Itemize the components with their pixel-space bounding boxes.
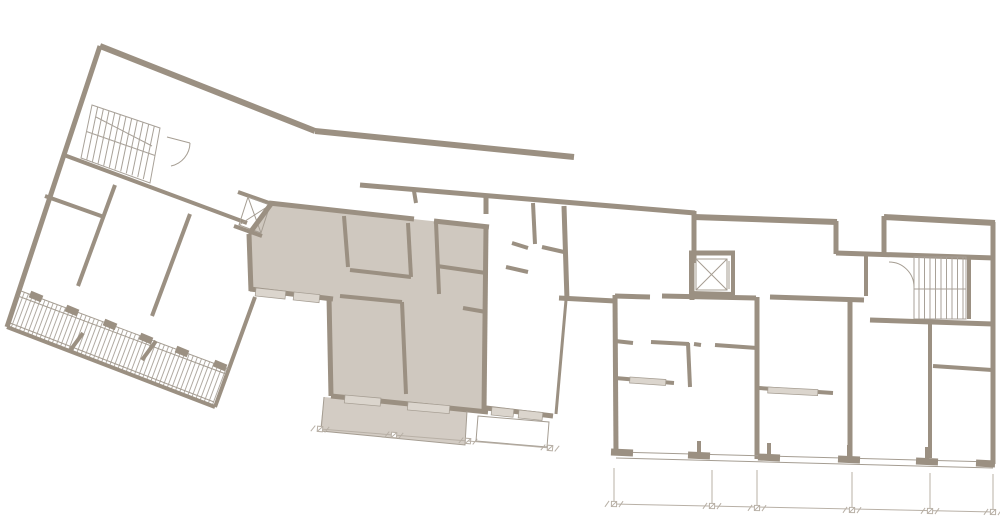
east-dimension-chain xyxy=(605,468,1000,515)
west-partition-3 xyxy=(45,196,104,217)
west-door-leaf xyxy=(167,137,190,143)
outer-walls xyxy=(7,46,995,464)
west-door-arc-icon xyxy=(171,143,190,166)
balcony-hatch xyxy=(8,291,229,407)
west-outer-wall xyxy=(7,46,100,327)
east-corridor xyxy=(615,253,866,300)
boundary-wall-north xyxy=(315,131,574,157)
middle-right-wall xyxy=(564,206,567,300)
west-staircase xyxy=(81,105,190,183)
east-staircase xyxy=(870,257,993,324)
middle-balcony-dim-line xyxy=(468,441,550,448)
east-interior-windows xyxy=(630,377,818,396)
west-partition-2 xyxy=(152,214,190,316)
stair-outline xyxy=(914,257,966,319)
unit-right-wall xyxy=(484,228,486,412)
west-balcony-band xyxy=(8,291,229,407)
east-shaft-bottom-wall xyxy=(691,293,733,294)
floor-plan-canvas xyxy=(0,0,1000,532)
west-partition-1 xyxy=(78,185,115,286)
gallery-wall-stub xyxy=(414,191,416,203)
middle-apartment xyxy=(468,203,615,452)
east-door-arc-icon xyxy=(889,262,914,287)
gallery-wall xyxy=(360,185,695,214)
floor-plan-svg xyxy=(0,0,1000,532)
stair-treads xyxy=(919,257,963,319)
gallery-corridor-wall xyxy=(360,185,695,213)
east-left-wall xyxy=(615,295,616,453)
west-wing-end-wall xyxy=(215,297,255,407)
unit-arm-left-wall xyxy=(249,234,251,291)
west-shaft-wall-top xyxy=(238,192,272,204)
middle-lower-right-wall xyxy=(556,300,566,414)
east-top-wall-a xyxy=(694,217,837,222)
east-corridor-bottom-wall xyxy=(615,296,864,300)
middle-partitions xyxy=(506,203,564,272)
east-top-wall-b xyxy=(884,217,995,223)
unit-floor-area[interactable] xyxy=(249,204,488,412)
unit-left-lower-wall xyxy=(329,297,331,396)
